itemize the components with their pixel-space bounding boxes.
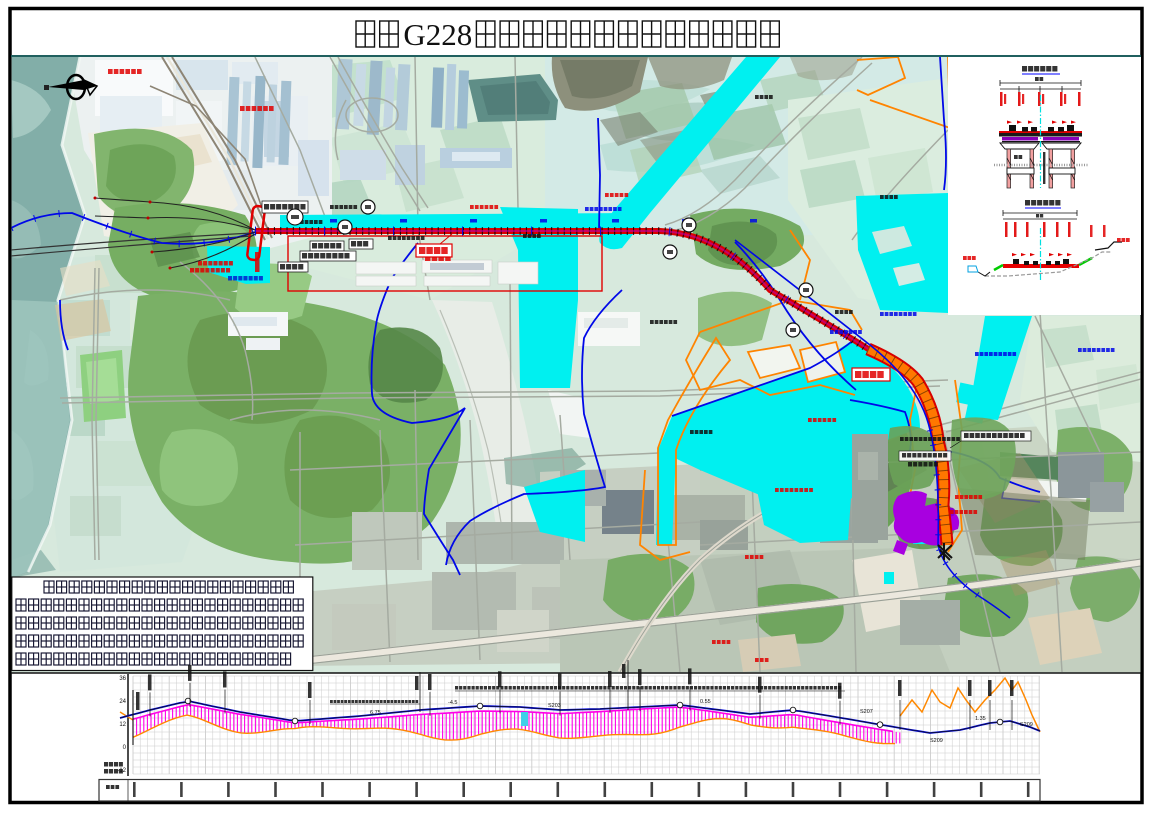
- svg-text:G228: G228: [403, 17, 472, 52]
- svg-text:S203: S203: [548, 703, 561, 709]
- svg-text:36: 36: [119, 676, 126, 682]
- svg-text:S207: S207: [860, 709, 873, 715]
- svg-text:S209: S209: [930, 738, 943, 744]
- svg-text:6.75: 6.75: [370, 710, 381, 716]
- svg-text:1.35: 1.35: [975, 716, 986, 722]
- svg-text:24: 24: [119, 699, 126, 705]
- svg-text:S209: S209: [1020, 722, 1033, 728]
- svg-text:0.55: 0.55: [700, 699, 711, 705]
- svg-text:12: 12: [119, 722, 126, 728]
- svg-text:-4.5: -4.5: [448, 700, 457, 706]
